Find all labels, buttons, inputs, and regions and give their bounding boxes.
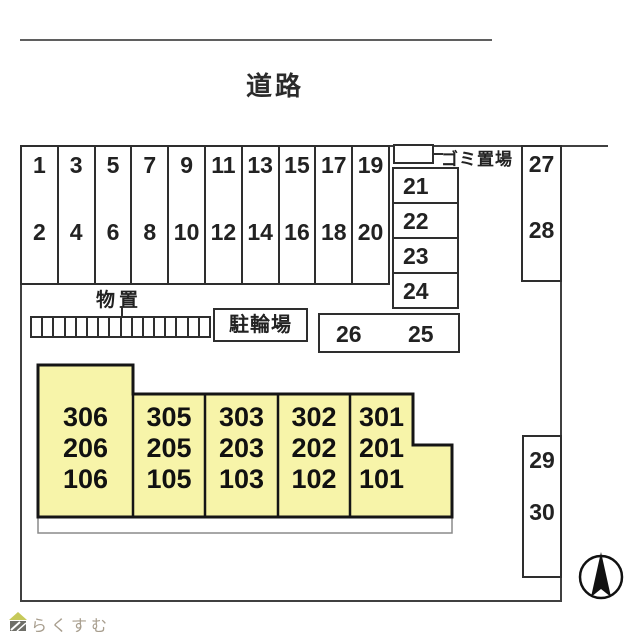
parking-column-17-18: 17 18 bbox=[316, 147, 353, 283]
building-unit-305: 305 205 105 bbox=[133, 402, 205, 495]
parking-space-28: 28 bbox=[523, 217, 560, 244]
building-unit-301: 301 201 101 bbox=[350, 402, 413, 495]
parking-column-27-28: 27 28 bbox=[521, 145, 562, 282]
storage-label: 物置 bbox=[96, 285, 142, 312]
storage-cell bbox=[110, 318, 121, 336]
parking-space-27: 27 bbox=[523, 151, 560, 178]
storage-cell bbox=[66, 318, 77, 336]
rakusumu-logo-icon bbox=[8, 612, 28, 632]
parking-space-15: 15 bbox=[280, 152, 315, 179]
parking-space-9: 9 bbox=[169, 152, 204, 179]
parking-space-21: 21 bbox=[392, 167, 459, 204]
storage-connector bbox=[121, 306, 123, 316]
parking-space-17: 17 bbox=[316, 152, 351, 179]
parking-space-14: 14 bbox=[243, 219, 278, 246]
room-label-106: 106 bbox=[38, 464, 133, 495]
parking-space-16: 16 bbox=[280, 219, 315, 246]
storage-cell bbox=[122, 318, 133, 336]
parking-space-1: 1 bbox=[22, 152, 57, 179]
room-label-203: 203 bbox=[205, 433, 278, 464]
room-label-201: 201 bbox=[350, 433, 413, 464]
parking-space-4: 4 bbox=[59, 219, 94, 246]
parking-space-25: 25 bbox=[408, 317, 434, 351]
parking-column-3-4: 3 4 bbox=[59, 147, 96, 283]
parking-column-7-8: 7 8 bbox=[132, 147, 169, 283]
room-label-102: 102 bbox=[278, 464, 350, 495]
parking-grid-1-20: 1 2 3 4 5 6 7 8 9 10 11 12 13 14 15 16 bbox=[20, 145, 390, 285]
parking-column-1-2: 1 2 bbox=[22, 147, 59, 283]
road-edge-line bbox=[20, 39, 492, 41]
parking-space-12: 12 bbox=[206, 219, 241, 246]
parking-column-13-14: 13 14 bbox=[243, 147, 280, 283]
storage-cell bbox=[166, 318, 177, 336]
storage-cell bbox=[32, 318, 43, 336]
garbage-area-box bbox=[393, 144, 434, 164]
site-boundary-bottom bbox=[20, 600, 562, 602]
parking-column-9-10: 9 10 bbox=[169, 147, 206, 283]
storage-cell bbox=[144, 318, 155, 336]
parking-space-23: 23 bbox=[392, 237, 459, 274]
parking-stack-21-24: 21 22 23 24 bbox=[392, 167, 459, 309]
storage-cell bbox=[54, 318, 65, 336]
storage-cell bbox=[88, 318, 99, 336]
parking-space-10: 10 bbox=[169, 219, 204, 246]
parking-space-30: 30 bbox=[524, 499, 560, 526]
parking-column-29-30: 29 30 bbox=[522, 435, 562, 578]
room-label-305: 305 bbox=[133, 402, 205, 433]
parking-space-7: 7 bbox=[132, 152, 167, 179]
parking-space-2: 2 bbox=[22, 219, 57, 246]
room-label-303: 303 bbox=[205, 402, 278, 433]
parking-column-5-6: 5 6 bbox=[96, 147, 133, 283]
building-unit-302: 302 202 102 bbox=[278, 402, 350, 495]
storage-cell bbox=[177, 318, 188, 336]
parking-box-25-26: 26 25 bbox=[318, 313, 460, 353]
parking-space-20: 20 bbox=[353, 219, 388, 246]
room-label-206: 206 bbox=[38, 433, 133, 464]
bicycle-parking-box: 駐輪場 bbox=[213, 308, 308, 342]
room-label-202: 202 bbox=[278, 433, 350, 464]
parking-space-18: 18 bbox=[316, 219, 351, 246]
parking-space-19: 19 bbox=[353, 152, 388, 179]
parking-space-6: 6 bbox=[96, 219, 131, 246]
parking-space-24: 24 bbox=[392, 272, 459, 309]
storage-cell bbox=[43, 318, 54, 336]
parking-space-8: 8 bbox=[132, 219, 167, 246]
room-label-105: 105 bbox=[133, 464, 205, 495]
room-label-301: 301 bbox=[350, 402, 413, 433]
room-label-101: 101 bbox=[350, 464, 413, 495]
building-walkway bbox=[38, 517, 452, 533]
room-label-306: 306 bbox=[38, 402, 133, 433]
room-label-205: 205 bbox=[133, 433, 205, 464]
parking-space-29: 29 bbox=[524, 447, 560, 474]
parking-column-15-16: 15 16 bbox=[280, 147, 317, 283]
parking-space-13: 13 bbox=[243, 152, 278, 179]
parking-column-19-20: 19 20 bbox=[353, 147, 388, 283]
north-compass-icon bbox=[580, 552, 622, 598]
storage-cell bbox=[77, 318, 88, 336]
storage-cell bbox=[200, 318, 209, 336]
road-label: 道路 bbox=[200, 66, 350, 103]
room-label-302: 302 bbox=[278, 402, 350, 433]
parking-space-5: 5 bbox=[96, 152, 131, 179]
room-label-103: 103 bbox=[205, 464, 278, 495]
storage-cell bbox=[133, 318, 144, 336]
building-unit-303: 303 203 103 bbox=[205, 402, 278, 495]
storage-cell bbox=[155, 318, 166, 336]
parking-space-3: 3 bbox=[59, 152, 94, 179]
storage-cell bbox=[99, 318, 110, 336]
parking-column-11-12: 11 12 bbox=[206, 147, 243, 283]
rakusumu-logo-text: らくすむ bbox=[31, 612, 111, 636]
parking-space-11: 11 bbox=[206, 152, 241, 179]
parking-space-26: 26 bbox=[336, 317, 362, 351]
building-unit-306: 306 206 106 bbox=[38, 402, 133, 495]
storage-cell bbox=[189, 318, 200, 336]
site-plan: 道路 1 2 3 4 5 6 7 8 9 10 11 12 13 bbox=[0, 0, 640, 640]
storage-shed-strip bbox=[30, 316, 211, 338]
parking-space-22: 22 bbox=[392, 202, 459, 239]
